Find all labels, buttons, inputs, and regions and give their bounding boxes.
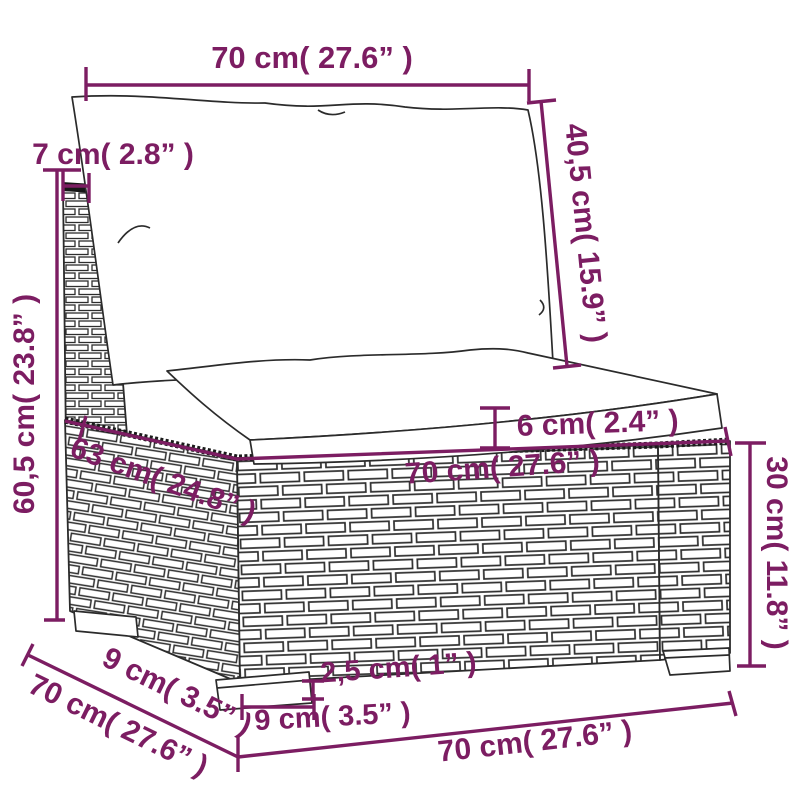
dim-label-base-height: 30 cm( 11.8” ) — [760, 456, 793, 649]
dim-label-seat-cushion-thickness: 6 cm( 2.4” ) — [516, 404, 679, 443]
dim-label-backrest-height: 60,5 cm( 23.8” ) — [8, 294, 41, 514]
dim-label-post-top-depth: 7 cm( 2.8” ) — [32, 138, 194, 171]
dim-label-foot-width: 9 cm( 3.5” ) — [254, 697, 412, 737]
dim-label-top-width: 70 cm( 27.6” ) — [211, 40, 413, 75]
sofa-dimension-drawing: 70 cm( 27.6” ) 7 cm( 2.8” ) 60,5 cm( 23.… — [0, 0, 800, 800]
sofa-line-art — [62, 96, 730, 710]
right-foot — [663, 648, 730, 675]
dim-label-bottom-front-width: 70 cm( 27.6” ) — [436, 714, 634, 768]
dim-label-back-cushion-height: 40,5 cm( 15.9” ) — [558, 122, 612, 344]
base-right-face — [658, 441, 730, 660]
dimension-diagram: 70 cm( 27.6” ) 7 cm( 2.8” ) 60,5 cm( 23.… — [0, 0, 800, 800]
